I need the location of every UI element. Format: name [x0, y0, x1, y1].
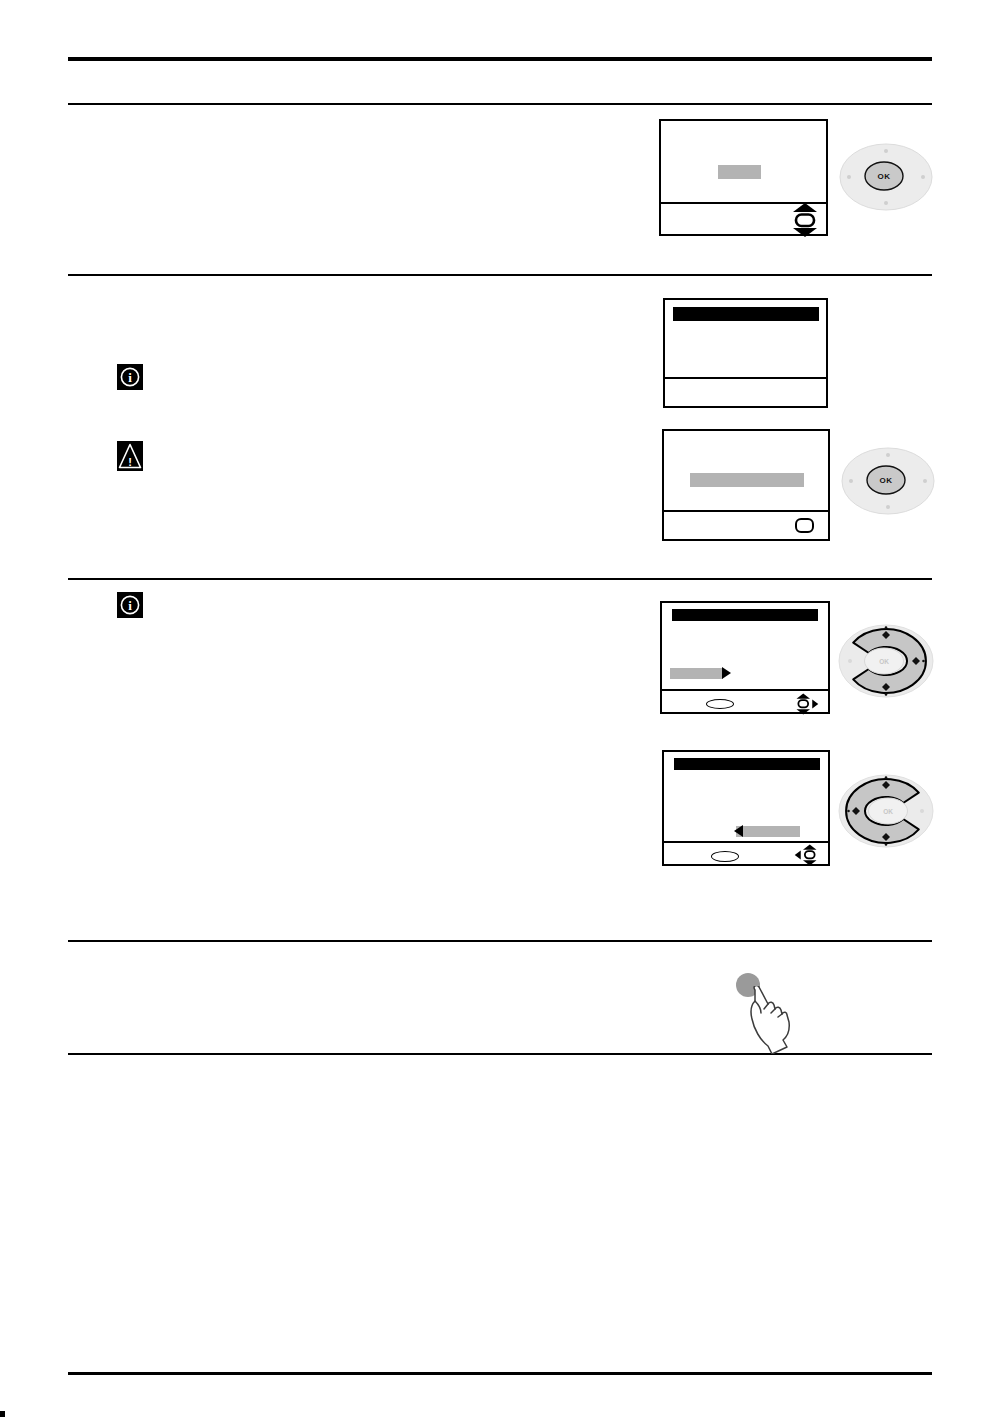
nav-left-up-down-icon	[794, 844, 818, 866]
osd-screen-4	[660, 601, 830, 714]
page-corner-mark	[0, 1411, 5, 1417]
down-arrow-dot	[886, 505, 890, 509]
header-rule-thin	[68, 103, 932, 105]
osd-divider	[665, 377, 826, 379]
exclamation-triangle-icon: !	[117, 441, 143, 471]
left-arrow-dot	[849, 479, 853, 483]
up-arrow-dot	[886, 453, 890, 457]
osd-slider-bar	[670, 668, 723, 679]
ok-button-label: OK	[878, 172, 891, 181]
slider-left-arrow	[734, 825, 743, 837]
ok-pad: OK	[838, 142, 934, 212]
down-dot	[885, 843, 888, 846]
osd-screen-1	[659, 119, 828, 236]
osd-title-bar	[674, 758, 820, 770]
right-dot	[922, 660, 925, 663]
osd-slider-bar	[736, 826, 800, 837]
right-faint-dot	[920, 809, 924, 813]
left-dot	[847, 810, 850, 813]
right-arrow-dot	[921, 175, 925, 179]
dpad-up-right-down: OK	[836, 622, 936, 700]
info-icon: i	[117, 364, 143, 390]
circled-i-icon: i	[117, 364, 143, 390]
section-2-rule	[68, 274, 932, 276]
nav-up-down-right-icon	[795, 693, 819, 715]
osd-message-bar	[690, 473, 804, 487]
osd-oval-button-icon	[706, 699, 734, 709]
info-glyph: i	[128, 370, 132, 385]
info-icon: i	[117, 592, 143, 618]
up-dot	[885, 626, 888, 629]
osd-highlight-item	[718, 165, 761, 179]
osd-screen-3	[662, 429, 830, 541]
left-faint-dot	[848, 659, 852, 663]
right-arrow-dot	[923, 479, 927, 483]
down-dot	[885, 693, 888, 696]
osd-screen-5	[662, 750, 830, 866]
finger-press-icon	[746, 986, 808, 1054]
osd-divider	[662, 689, 828, 691]
nav-up-down-icon	[792, 203, 818, 237]
header-rule-thick	[68, 57, 932, 61]
dpad-center-label: OK	[879, 658, 889, 665]
down-arrow-dot	[884, 201, 888, 205]
osd-divider	[664, 841, 828, 843]
manual-page: OK i ! OK i	[0, 0, 999, 1418]
circled-i-icon: i	[117, 592, 143, 618]
warning-glyph: !	[128, 456, 132, 468]
osd-divider	[664, 510, 828, 512]
hand-outline	[751, 986, 789, 1054]
up-dot	[885, 776, 888, 779]
osd-title-bar	[673, 307, 819, 321]
dpad-up-left-down: OK	[836, 772, 936, 850]
ok-pad: OK	[840, 446, 936, 516]
osd-screen-2	[663, 298, 828, 408]
footer-rule	[68, 1372, 932, 1375]
ok-button-label: OK	[880, 476, 893, 485]
slider-right-arrow	[722, 667, 731, 679]
warning-icon: !	[117, 441, 143, 471]
osd-oval-button-icon	[711, 851, 739, 862]
section-4-top-rule	[68, 940, 932, 942]
up-arrow-dot	[884, 149, 888, 153]
dpad-center-label: OK	[883, 808, 893, 815]
info-glyph: i	[128, 598, 132, 613]
left-arrow-dot	[847, 175, 851, 179]
section-3-rule	[68, 578, 932, 580]
osd-button-icon	[795, 518, 814, 533]
osd-title-bar	[672, 609, 818, 621]
